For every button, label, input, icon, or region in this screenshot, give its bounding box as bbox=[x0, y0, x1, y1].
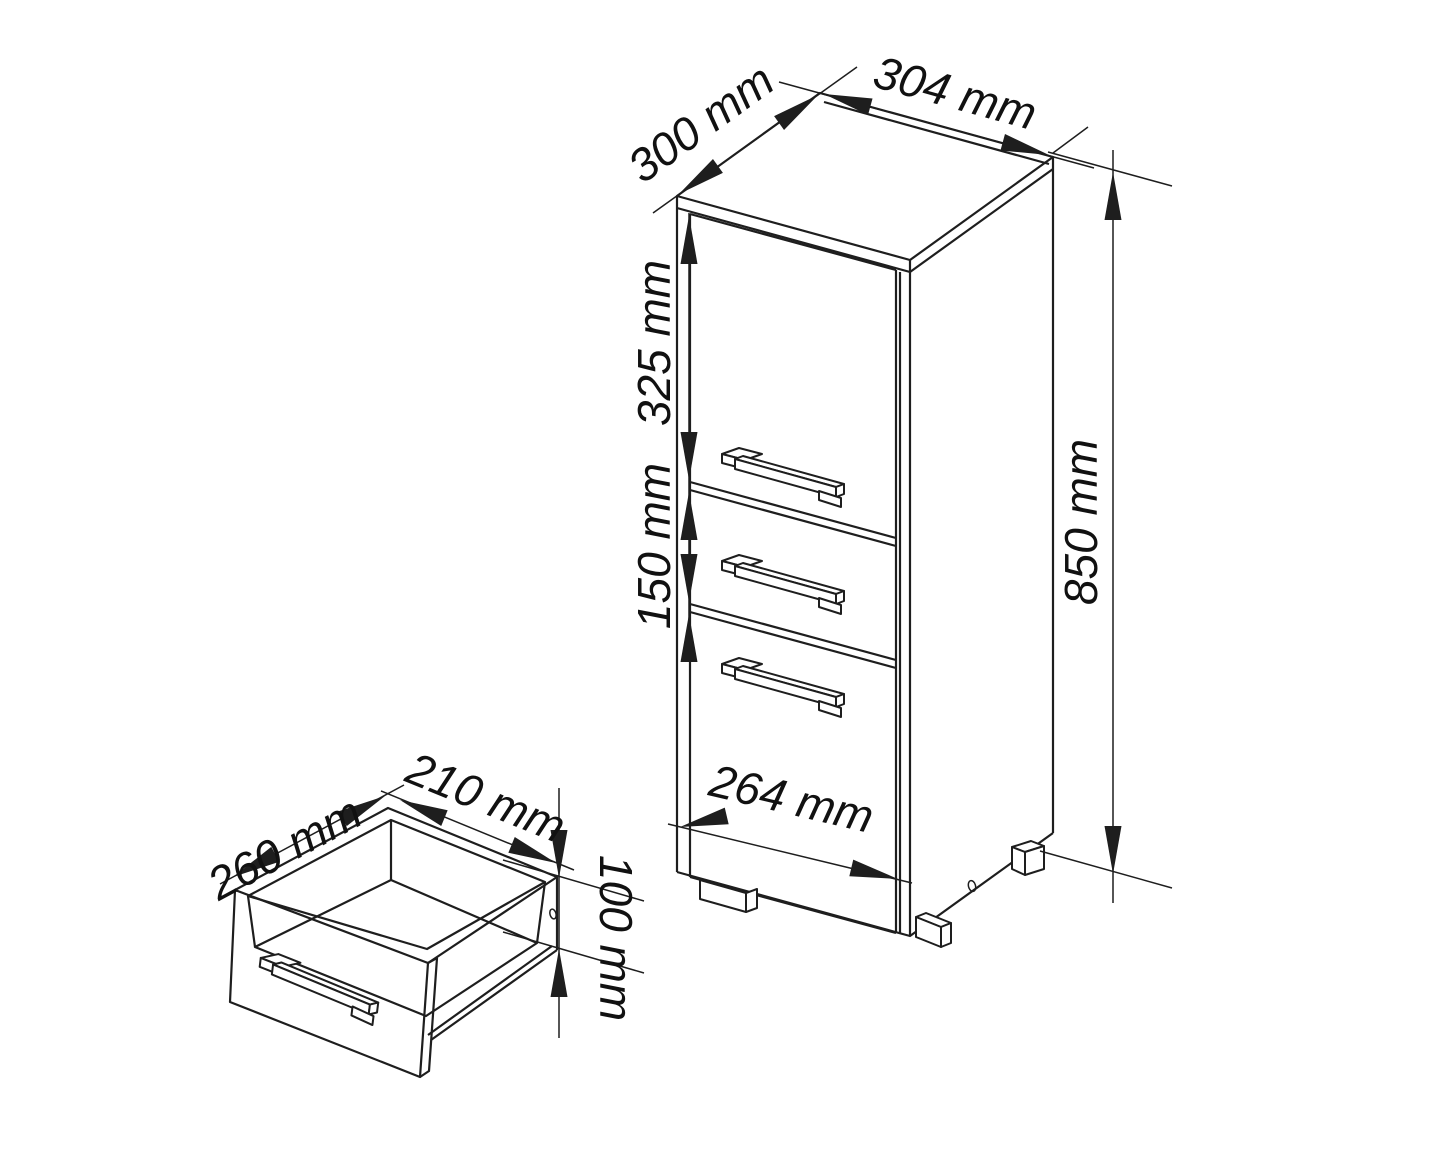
drawer-right-wall bbox=[428, 877, 557, 1040]
dim-label-cabinet-top-width: 304 mm bbox=[868, 45, 1042, 139]
cabinet-handle-middle bbox=[722, 555, 844, 614]
dim-label-cabinet-height: 850 mm bbox=[1055, 439, 1107, 605]
drawer-front-panel-side bbox=[420, 958, 437, 1077]
furniture-dimension-drawing: 300 mm 304 mm 850 mm 325 mm 150 mm 264 m… bbox=[0, 0, 1445, 1160]
dim-label-cabinet-front-width: 264 mm bbox=[704, 754, 879, 843]
drawer-handle bbox=[254, 952, 382, 1025]
technical-drawing-page: 300 mm 304 mm 850 mm 325 mm 150 mm 264 m… bbox=[0, 0, 1445, 1160]
dim-label-drawer-front-height: 150 mm bbox=[628, 463, 680, 629]
cabinet-handle-bottom bbox=[722, 658, 844, 717]
dim-label-drawer-width: 210 mm bbox=[398, 741, 572, 852]
cabinet-handle-top bbox=[722, 448, 844, 507]
cabinet-front-divisions bbox=[690, 482, 896, 668]
dim-label-drawer-depth: 260 mm bbox=[198, 786, 370, 911]
dim-label-drawer-side-height: 100 mm bbox=[590, 855, 642, 1021]
cabinet-feet bbox=[700, 841, 1044, 947]
dim-label-upper-door-height: 325 mm bbox=[628, 260, 680, 426]
dimension-labels: 300 mm 304 mm 850 mm 325 mm 150 mm 264 m… bbox=[198, 45, 1107, 1021]
